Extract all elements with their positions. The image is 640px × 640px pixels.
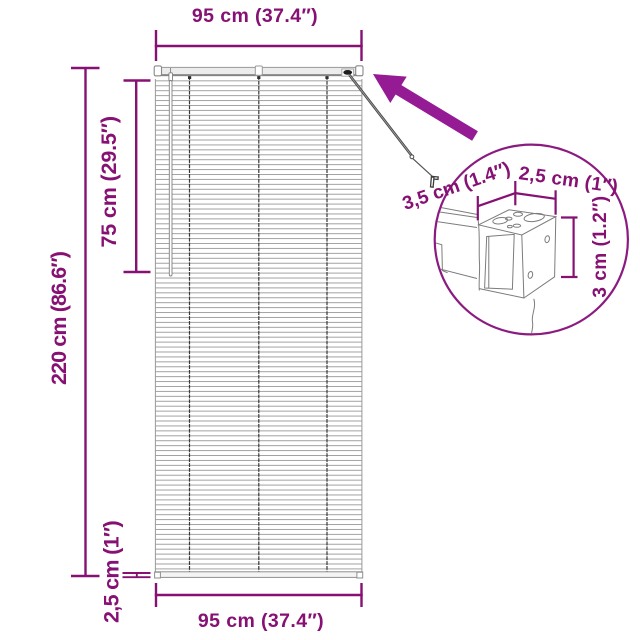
svg-text:2,5 cm (1″): 2,5 cm (1″) <box>100 520 124 623</box>
svg-text:95 cm (37.4″): 95 cm (37.4″) <box>192 5 318 27</box>
svg-text:220 cm (86.6″): 220 cm (86.6″) <box>47 251 71 385</box>
svg-text:75 cm (29.5″): 75 cm (29.5″) <box>97 116 121 247</box>
svg-text:3 cm (1.2″): 3 cm (1.2″) <box>590 195 611 297</box>
svg-text:95 cm (37.4″): 95 cm (37.4″) <box>198 610 324 632</box>
